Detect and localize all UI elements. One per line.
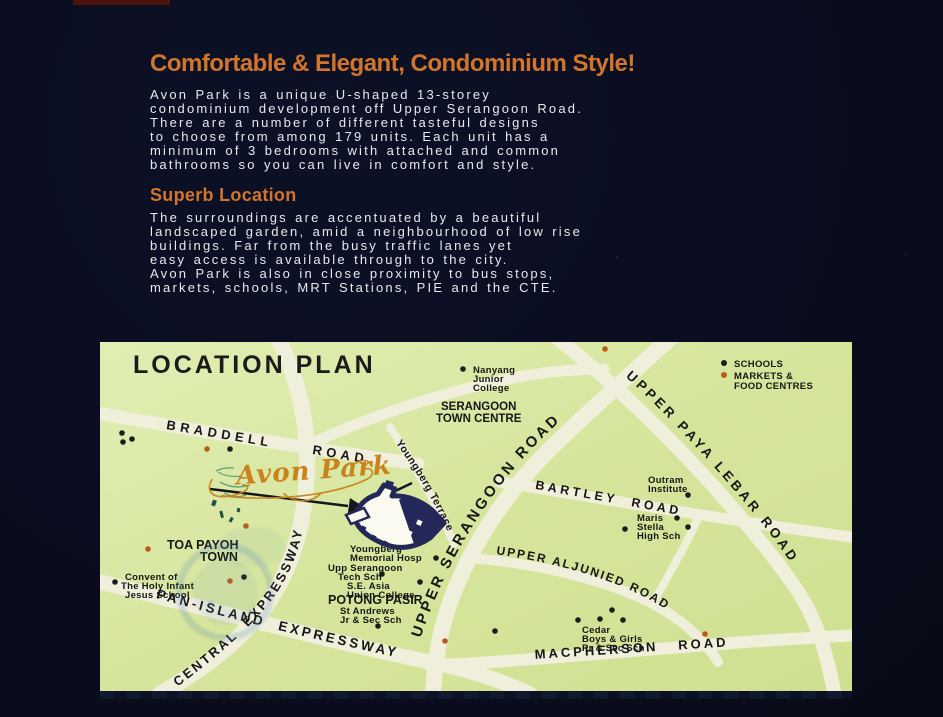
place-st-andrews-2: Jr & Sec Sch [340, 615, 402, 626]
area-serangoon-town-centre-line1: SERANGOON [441, 401, 516, 413]
location-paragraph: The surroundings are accentuated by a be… [150, 211, 840, 295]
brochure-page: Comfortable & Elegant, Condominium Style… [0, 0, 943, 717]
legend-school-dot-icon [721, 360, 727, 366]
legend-markets-label-2: FOOD CENTRES [734, 381, 813, 392]
map-title: LOCATION PLAN [133, 351, 376, 379]
subheading: Superb Location [150, 186, 840, 205]
place-outram-2: Institute [648, 484, 688, 495]
legend-market-dot-icon [721, 372, 727, 378]
headline: Comfortable & Elegant, Condominium Style… [150, 51, 840, 76]
place-se-asia-2: Union College [347, 590, 415, 601]
place-cedar-3: Pr & Sec Sch [582, 643, 645, 654]
map-bottom-edge [100, 691, 852, 699]
area-serangoon-town-centre-line2: TOWN CENTRE [436, 413, 522, 425]
location-plan-svg: BRADDELL ROAD CENTRAL EXPRESSWAY PAN-ISL… [100, 342, 852, 691]
legend-schools-label: SCHOOLS [734, 359, 783, 370]
marketing-copy: Comfortable & Elegant, Condominium Style… [150, 51, 840, 295]
place-maris-3: High Sch [637, 531, 681, 542]
page-edge-sliver [73, 0, 170, 5]
intro-paragraph: Avon Park is a unique U-shaped 13-storey… [150, 88, 840, 172]
location-plan-map: BRADDELL ROAD CENTRAL EXPRESSWAY PAN-ISL… [100, 342, 852, 691]
place-nanyang-3: College [473, 383, 509, 394]
dust-speck [905, 254, 907, 256]
